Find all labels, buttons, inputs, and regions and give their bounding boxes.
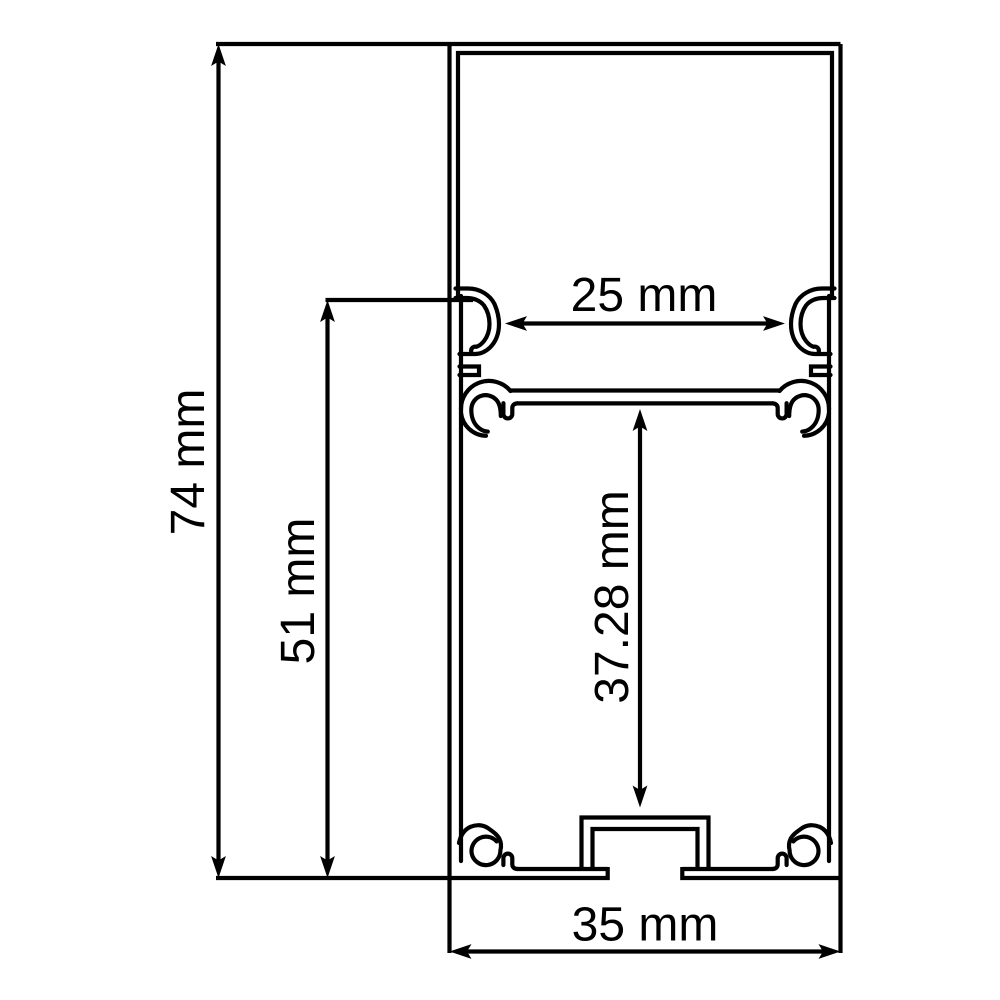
svg-text:25 mm: 25 mm [571,269,718,322]
svg-text:51 mm: 51 mm [272,518,325,665]
svg-text:35 mm: 35 mm [572,899,719,952]
svg-text:74 mm: 74 mm [162,389,215,536]
svg-text:37.28 mm: 37.28 mm [586,490,639,703]
